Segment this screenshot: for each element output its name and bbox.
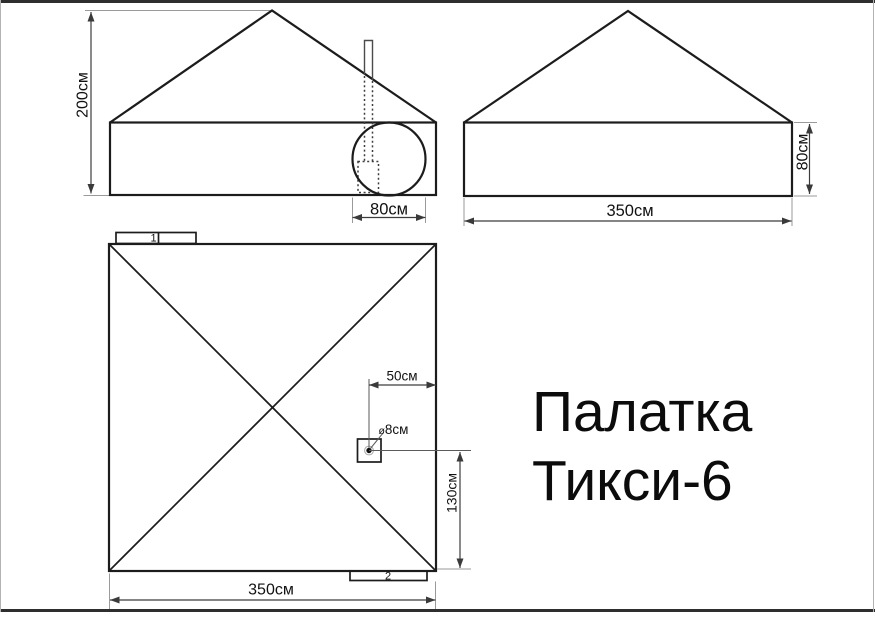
title-block: Палатка Тикси-6 [532,380,753,513]
front-view: 200см 80см [75,11,437,224]
side-view: 80см 350см [464,11,817,226]
drawing-title-line-1: Палатка [532,380,753,444]
plan-flap-top-label: 1 [150,233,156,245]
stove-offset-bottom-label: 130см [444,473,460,513]
tent-technical-drawing: 200см 80см 80см 350см 1 2 [0,0,875,618]
front-roof [110,11,436,123]
front-entrance-circle [353,123,426,196]
stove-offset-right-label: 50см [386,369,417,384]
plan-flap-bottom-label: 2 [385,571,391,583]
side-width-label: 350см [606,202,653,220]
front-height-label: 200см [75,72,92,118]
stove-hole-label: ø8см [379,422,409,437]
page-frame [0,0,875,612]
drawing-page: 200см 80см 80см 350см 1 2 [0,0,875,618]
front-body [110,123,436,196]
side-height-label: 80см [795,134,812,171]
plan-width-label: 350см [248,582,294,599]
drawing-title-line-2: Тикси-6 [532,449,733,513]
entrance-width-label: 80см [370,201,408,219]
plan-view: 1 2 50см ø8см 130см 350см [109,233,471,613]
side-body [464,123,792,197]
side-roof [464,11,792,123]
